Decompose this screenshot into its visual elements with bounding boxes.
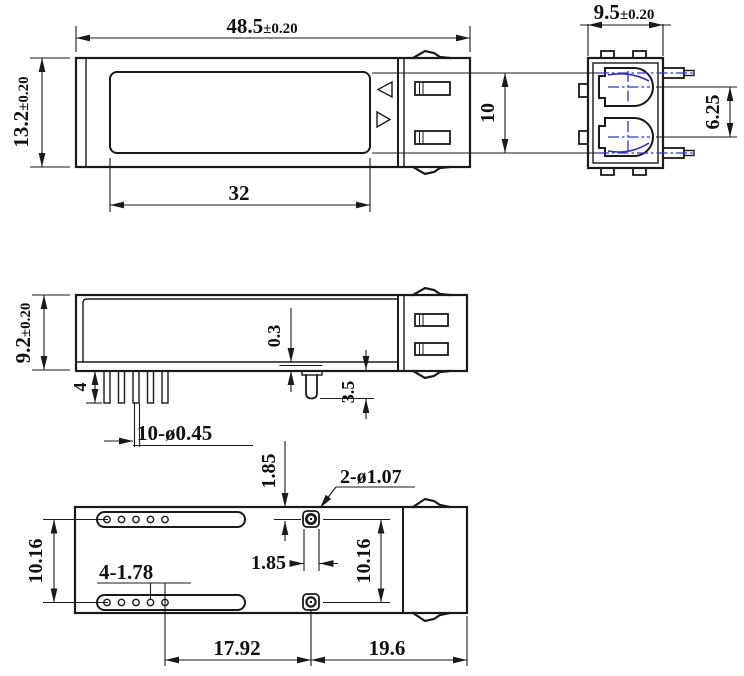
dim-pin-length: 4 bbox=[70, 383, 90, 392]
dim-label-width: 32 bbox=[229, 181, 250, 205]
dim-step-height: 0.3 bbox=[264, 325, 284, 348]
dim-post-to-end: 19.6 bbox=[369, 636, 406, 660]
dim-hole-to-post: 17.92 bbox=[213, 636, 260, 660]
dim-post-pitch: 10.16 bbox=[353, 539, 375, 584]
dim-slot-pitch: 10.16 bbox=[25, 539, 47, 584]
dim-post-length: 3.5 bbox=[338, 381, 358, 404]
post-hole-center bbox=[310, 518, 312, 520]
dim-pin-pitch: 10 bbox=[477, 103, 499, 123]
dim-post-edge-offset: 1.85 bbox=[258, 454, 280, 489]
dim-port-pitch: 6.25 bbox=[702, 95, 724, 130]
dim-hole-spec: 4-1.78 bbox=[99, 560, 153, 584]
dim-post-hole-spec: 2-ø1.07 bbox=[340, 466, 402, 488]
dim-post-width: 1.85 bbox=[251, 552, 286, 574]
dim-pin-spec: 10-ø0.45 bbox=[137, 421, 212, 445]
engineering-drawing-page: 48.5±0.20 13.2±0.20 32 10 bbox=[0, 0, 744, 676]
post-hole-center bbox=[310, 601, 312, 603]
transceiver-dimension-drawing: 48.5±0.20 13.2±0.20 32 10 bbox=[0, 0, 744, 676]
